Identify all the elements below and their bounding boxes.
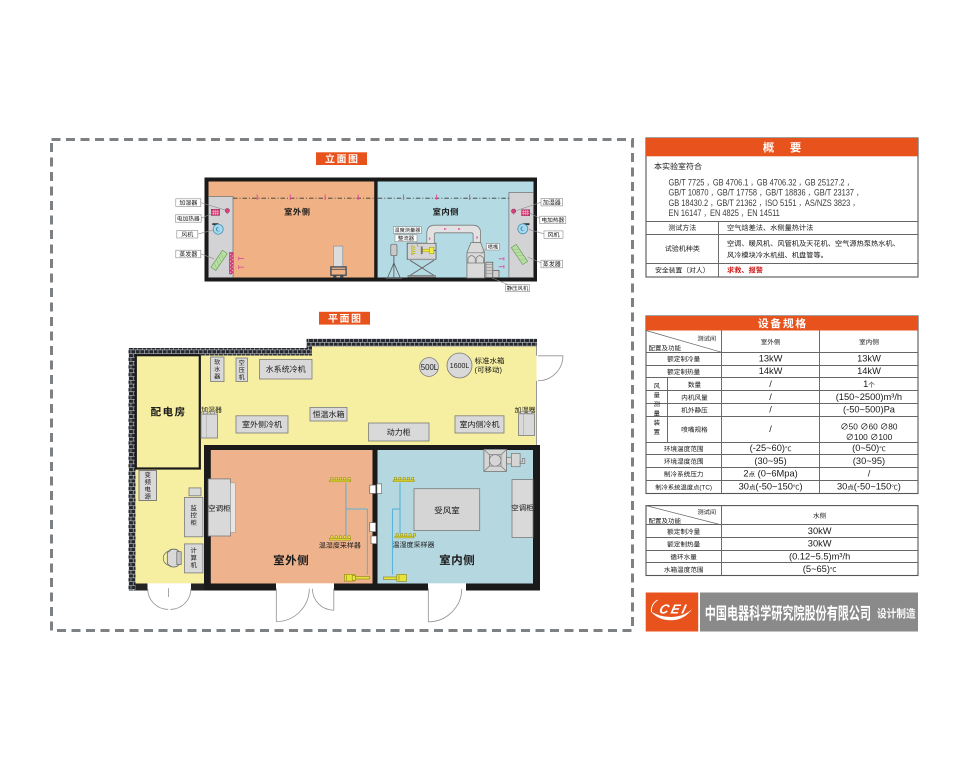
svg-text:EN 16147: EN 16147 [669, 207, 704, 218]
svg-text:13kW: 13kW [759, 353, 783, 363]
svg-text:(0.12~5.5)m³/h: (0.12~5.5)m³/h [789, 551, 850, 561]
svg-text:14kW: 14kW [857, 366, 881, 376]
svg-text:2: 2 [743, 469, 748, 479]
svg-text:1600L: 1600L [450, 363, 470, 370]
svg-text:13kW: 13kW [857, 353, 881, 363]
svg-text:30: 30 [837, 482, 847, 492]
svg-text:(0~50): (0~50) [852, 443, 879, 453]
svg-text:(150~2500)m³/h: (150~2500)m³/h [836, 392, 902, 402]
svg-text:AS/NZS 3823: AS/NZS 3823 [805, 197, 852, 208]
svg-text:30: 30 [739, 482, 749, 492]
svg-text:/: / [769, 424, 772, 434]
svg-text:(TC): (TC) [699, 485, 712, 492]
svg-text:(0~6Mpa): (0~6Mpa) [755, 469, 798, 479]
svg-text:/: / [769, 392, 772, 402]
svg-text:EN 4825: EN 4825 [710, 207, 741, 218]
svg-text:50: 50 [849, 422, 861, 432]
svg-text:100: 100 [878, 432, 892, 442]
svg-text:): ) [800, 482, 803, 492]
svg-text:14kW: 14kW [759, 366, 783, 376]
svg-text:30kW: 30kW [808, 526, 832, 536]
svg-text:(30~95): (30~95) [853, 456, 885, 466]
svg-text:(-50~150: (-50~150 [854, 482, 891, 492]
svg-text:500L: 500L [421, 363, 439, 372]
svg-text:(-25~60): (-25~60) [750, 443, 785, 453]
svg-text:/: / [769, 379, 772, 389]
svg-text:(-50~150: (-50~150 [756, 482, 793, 492]
svg-text:): ) [898, 482, 901, 492]
svg-text:(-50~500)Pa: (-50~500)Pa [843, 405, 896, 415]
svg-text:(5~65): (5~65) [803, 564, 830, 574]
svg-text:1: 1 [863, 379, 868, 389]
svg-text:60: 60 [869, 422, 881, 432]
svg-text:/: / [769, 405, 772, 415]
svg-text:EN 14511: EN 14511 [747, 207, 780, 218]
svg-text:80: 80 [888, 422, 898, 432]
svg-text:(30~95): (30~95) [754, 456, 786, 466]
svg-text:30kW: 30kW [808, 539, 832, 549]
svg-text:/: / [868, 469, 871, 479]
svg-text:100: 100 [854, 432, 870, 442]
